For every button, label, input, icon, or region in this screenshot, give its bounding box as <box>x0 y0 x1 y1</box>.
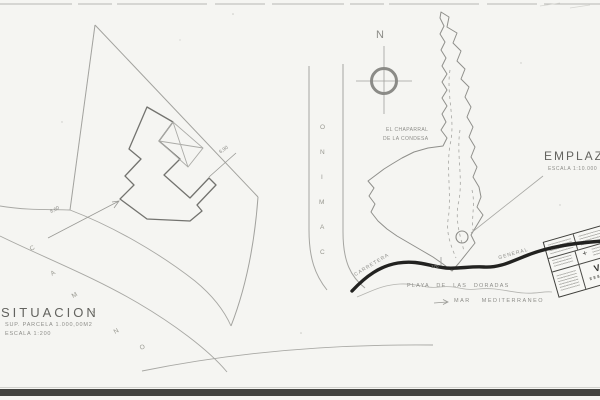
camino-letter: C <box>320 249 325 256</box>
scanned-plan-sheet: + VISA <box>0 0 600 400</box>
camino-letter: O <box>320 124 325 131</box>
leader-line <box>471 176 543 233</box>
north-compass-icon <box>356 46 412 114</box>
sea-label: MAR MEDITERRANEO <box>454 298 544 304</box>
camino-road-curves <box>0 206 433 372</box>
situacion-scale: ESCALA 1:200 <box>5 331 51 337</box>
beach-label: PLAYA DE LAS DORADAS <box>407 283 509 289</box>
situacion-parcel-area: SUP. PARCELA 1.000,00M2 <box>5 322 93 328</box>
camino-letter: I <box>321 174 323 181</box>
camino-letter: M <box>319 199 324 206</box>
middle-road <box>309 64 365 290</box>
situacion-title: SITUACION <box>1 305 99 320</box>
plan-linework <box>0 0 600 400</box>
camino-letter: A <box>320 224 324 231</box>
km-marker-label: 170 <box>431 264 439 269</box>
emplazamiento-scale: ESCALA 1:10.000 <box>548 166 597 172</box>
building-footprint <box>120 107 216 221</box>
patio-x-roof <box>159 122 203 167</box>
area-name-line1: EL CHAPARRAL <box>386 127 428 133</box>
site-marker-circle <box>456 231 468 243</box>
emplazamiento-title: EMPLAZAMIENTO <box>544 149 600 163</box>
sheet-bottom-band <box>0 389 600 396</box>
camino-letter: N <box>320 149 325 156</box>
area-name-line2: DE LA CONDESA <box>383 136 429 142</box>
sea-arrow-icon <box>434 300 448 305</box>
north-label: N <box>376 29 384 41</box>
dashed-trails <box>448 70 474 258</box>
